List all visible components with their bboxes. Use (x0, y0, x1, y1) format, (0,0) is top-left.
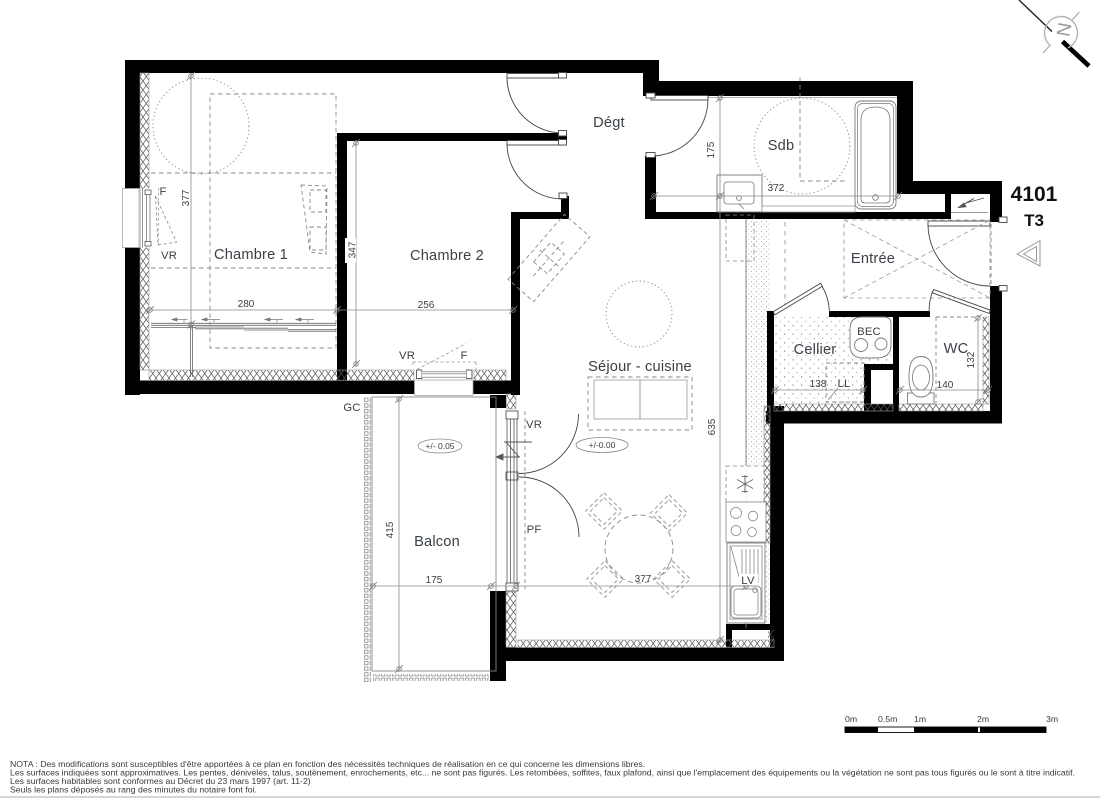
svg-text:175: 175 (706, 141, 717, 158)
svg-text:1m: 1m (914, 714, 926, 724)
svg-text:VR: VR (161, 250, 177, 262)
svg-text:T3: T3 (1024, 211, 1044, 230)
svg-text:3m: 3m (1046, 714, 1058, 724)
svg-text:0.5m: 0.5m (878, 714, 897, 724)
svg-text:WC: WC (944, 341, 969, 357)
svg-text:Entrée: Entrée (851, 251, 895, 267)
svg-text:Dégt: Dégt (593, 115, 625, 131)
svg-text:+/- 0.05: +/- 0.05 (425, 441, 454, 451)
svg-text:132: 132 (966, 351, 977, 368)
svg-text:415: 415 (385, 521, 396, 538)
svg-text:Chambre 1: Chambre 1 (214, 247, 288, 263)
svg-text:F: F (159, 186, 166, 198)
svg-text:0m: 0m (845, 714, 857, 724)
svg-text:VR: VR (526, 419, 542, 431)
svg-text:175: 175 (426, 575, 443, 586)
svg-text:+/-0.00: +/-0.00 (589, 440, 616, 450)
svg-text:Sdb: Sdb (768, 138, 795, 154)
svg-text:377: 377 (181, 189, 192, 206)
svg-text:4101: 4101 (1011, 183, 1058, 206)
svg-text:347: 347 (348, 241, 359, 258)
svg-text:377: 377 (635, 574, 652, 585)
svg-text:Séjour - cuisine: Séjour - cuisine (588, 359, 692, 375)
svg-text:VR: VR (399, 350, 415, 362)
svg-text:2m: 2m (977, 714, 989, 724)
svg-text:GC: GC (343, 402, 360, 414)
svg-text:Cellier: Cellier (794, 342, 837, 358)
svg-text:280: 280 (238, 299, 255, 310)
svg-text:Chambre 2: Chambre 2 (410, 248, 484, 264)
svg-text:138: 138 (810, 379, 827, 390)
svg-text:LV: LV (741, 575, 755, 587)
svg-text:LL: LL (838, 378, 851, 390)
svg-text:635: 635 (707, 418, 718, 435)
svg-text:372: 372 (768, 183, 785, 194)
svg-text:140: 140 (937, 380, 954, 391)
svg-text:Balcon: Balcon (414, 534, 460, 550)
svg-text:BEC: BEC (857, 326, 881, 338)
svg-text:PF: PF (527, 524, 542, 536)
svg-text:256: 256 (418, 300, 435, 311)
svg-text:F: F (460, 350, 467, 362)
svg-text:Seuls les plans déposés au ran: Seuls les plans déposés au rang des minu… (10, 785, 257, 795)
